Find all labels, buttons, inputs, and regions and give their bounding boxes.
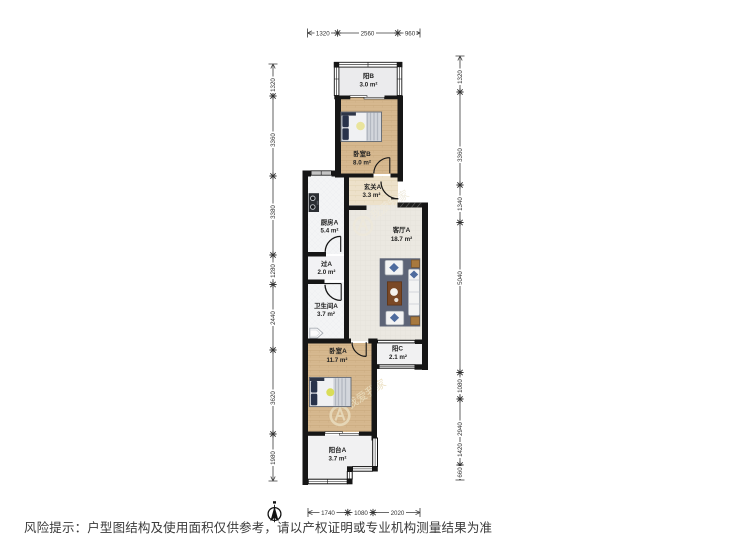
svg-text:5.4 m²: 5.4 m² [321, 228, 339, 235]
svg-text:660: 660 [457, 467, 464, 478]
svg-text:1080: 1080 [457, 379, 464, 393]
svg-text:2.0 m²: 2.0 m² [318, 269, 336, 276]
svg-text:1320: 1320 [316, 30, 330, 37]
svg-text:卧室A: 卧室A [329, 346, 347, 355]
svg-text:11.7 m²: 11.7 m² [327, 357, 348, 364]
svg-text:1340: 1340 [457, 197, 464, 211]
svg-text:2020: 2020 [391, 510, 405, 517]
svg-text:客厅A: 客厅A [392, 225, 411, 234]
svg-text:960: 960 [405, 30, 416, 37]
svg-text:3.0 m²: 3.0 m² [360, 82, 378, 89]
svg-text:3380: 3380 [270, 205, 277, 219]
svg-text:2440: 2440 [270, 311, 277, 325]
svg-text:18.7 m²: 18.7 m² [391, 236, 412, 243]
svg-text:2560: 2560 [361, 30, 375, 37]
svg-text:卫生间A: 卫生间A [314, 301, 338, 310]
svg-text:1980: 1980 [270, 451, 277, 465]
svg-text:1740: 1740 [321, 510, 335, 517]
svg-text:3.7 m²: 3.7 m² [329, 456, 347, 463]
svg-text:1320: 1320 [270, 78, 277, 92]
svg-text:2.1 m²: 2.1 m² [389, 354, 407, 361]
svg-text:1420: 1420 [457, 443, 464, 457]
svg-text:8.0 m²: 8.0 m² [353, 160, 371, 167]
svg-text:阳台A: 阳台A [329, 445, 347, 454]
svg-text:1080: 1080 [354, 510, 368, 517]
svg-text:过A: 过A [321, 259, 332, 268]
svg-text:1320: 1320 [457, 70, 464, 84]
svg-text:2940: 2940 [457, 422, 464, 436]
svg-text:3.7 m²: 3.7 m² [317, 311, 335, 318]
svg-text:3360: 3360 [270, 133, 277, 147]
svg-text:3620: 3620 [270, 391, 277, 405]
svg-text:1280: 1280 [270, 264, 277, 278]
svg-text:阳C: 阳C [392, 344, 403, 353]
svg-text:3.3 m²: 3.3 m² [363, 192, 381, 199]
svg-text:玄关A: 玄关A [364, 182, 382, 191]
svg-text:3360: 3360 [457, 148, 464, 162]
svg-text:5040: 5040 [457, 271, 464, 285]
svg-text:厨房A: 厨房A [321, 218, 339, 227]
svg-text:卧室B: 卧室B [353, 149, 371, 158]
svg-text:风险提示：户型图结构及使用面积仅供参考，请以产权证明或专业机: 风险提示：户型图结构及使用面积仅供参考，请以产权证明或专业机构测量结果为准 [24, 520, 492, 535]
svg-text:阳B: 阳B [363, 71, 374, 80]
